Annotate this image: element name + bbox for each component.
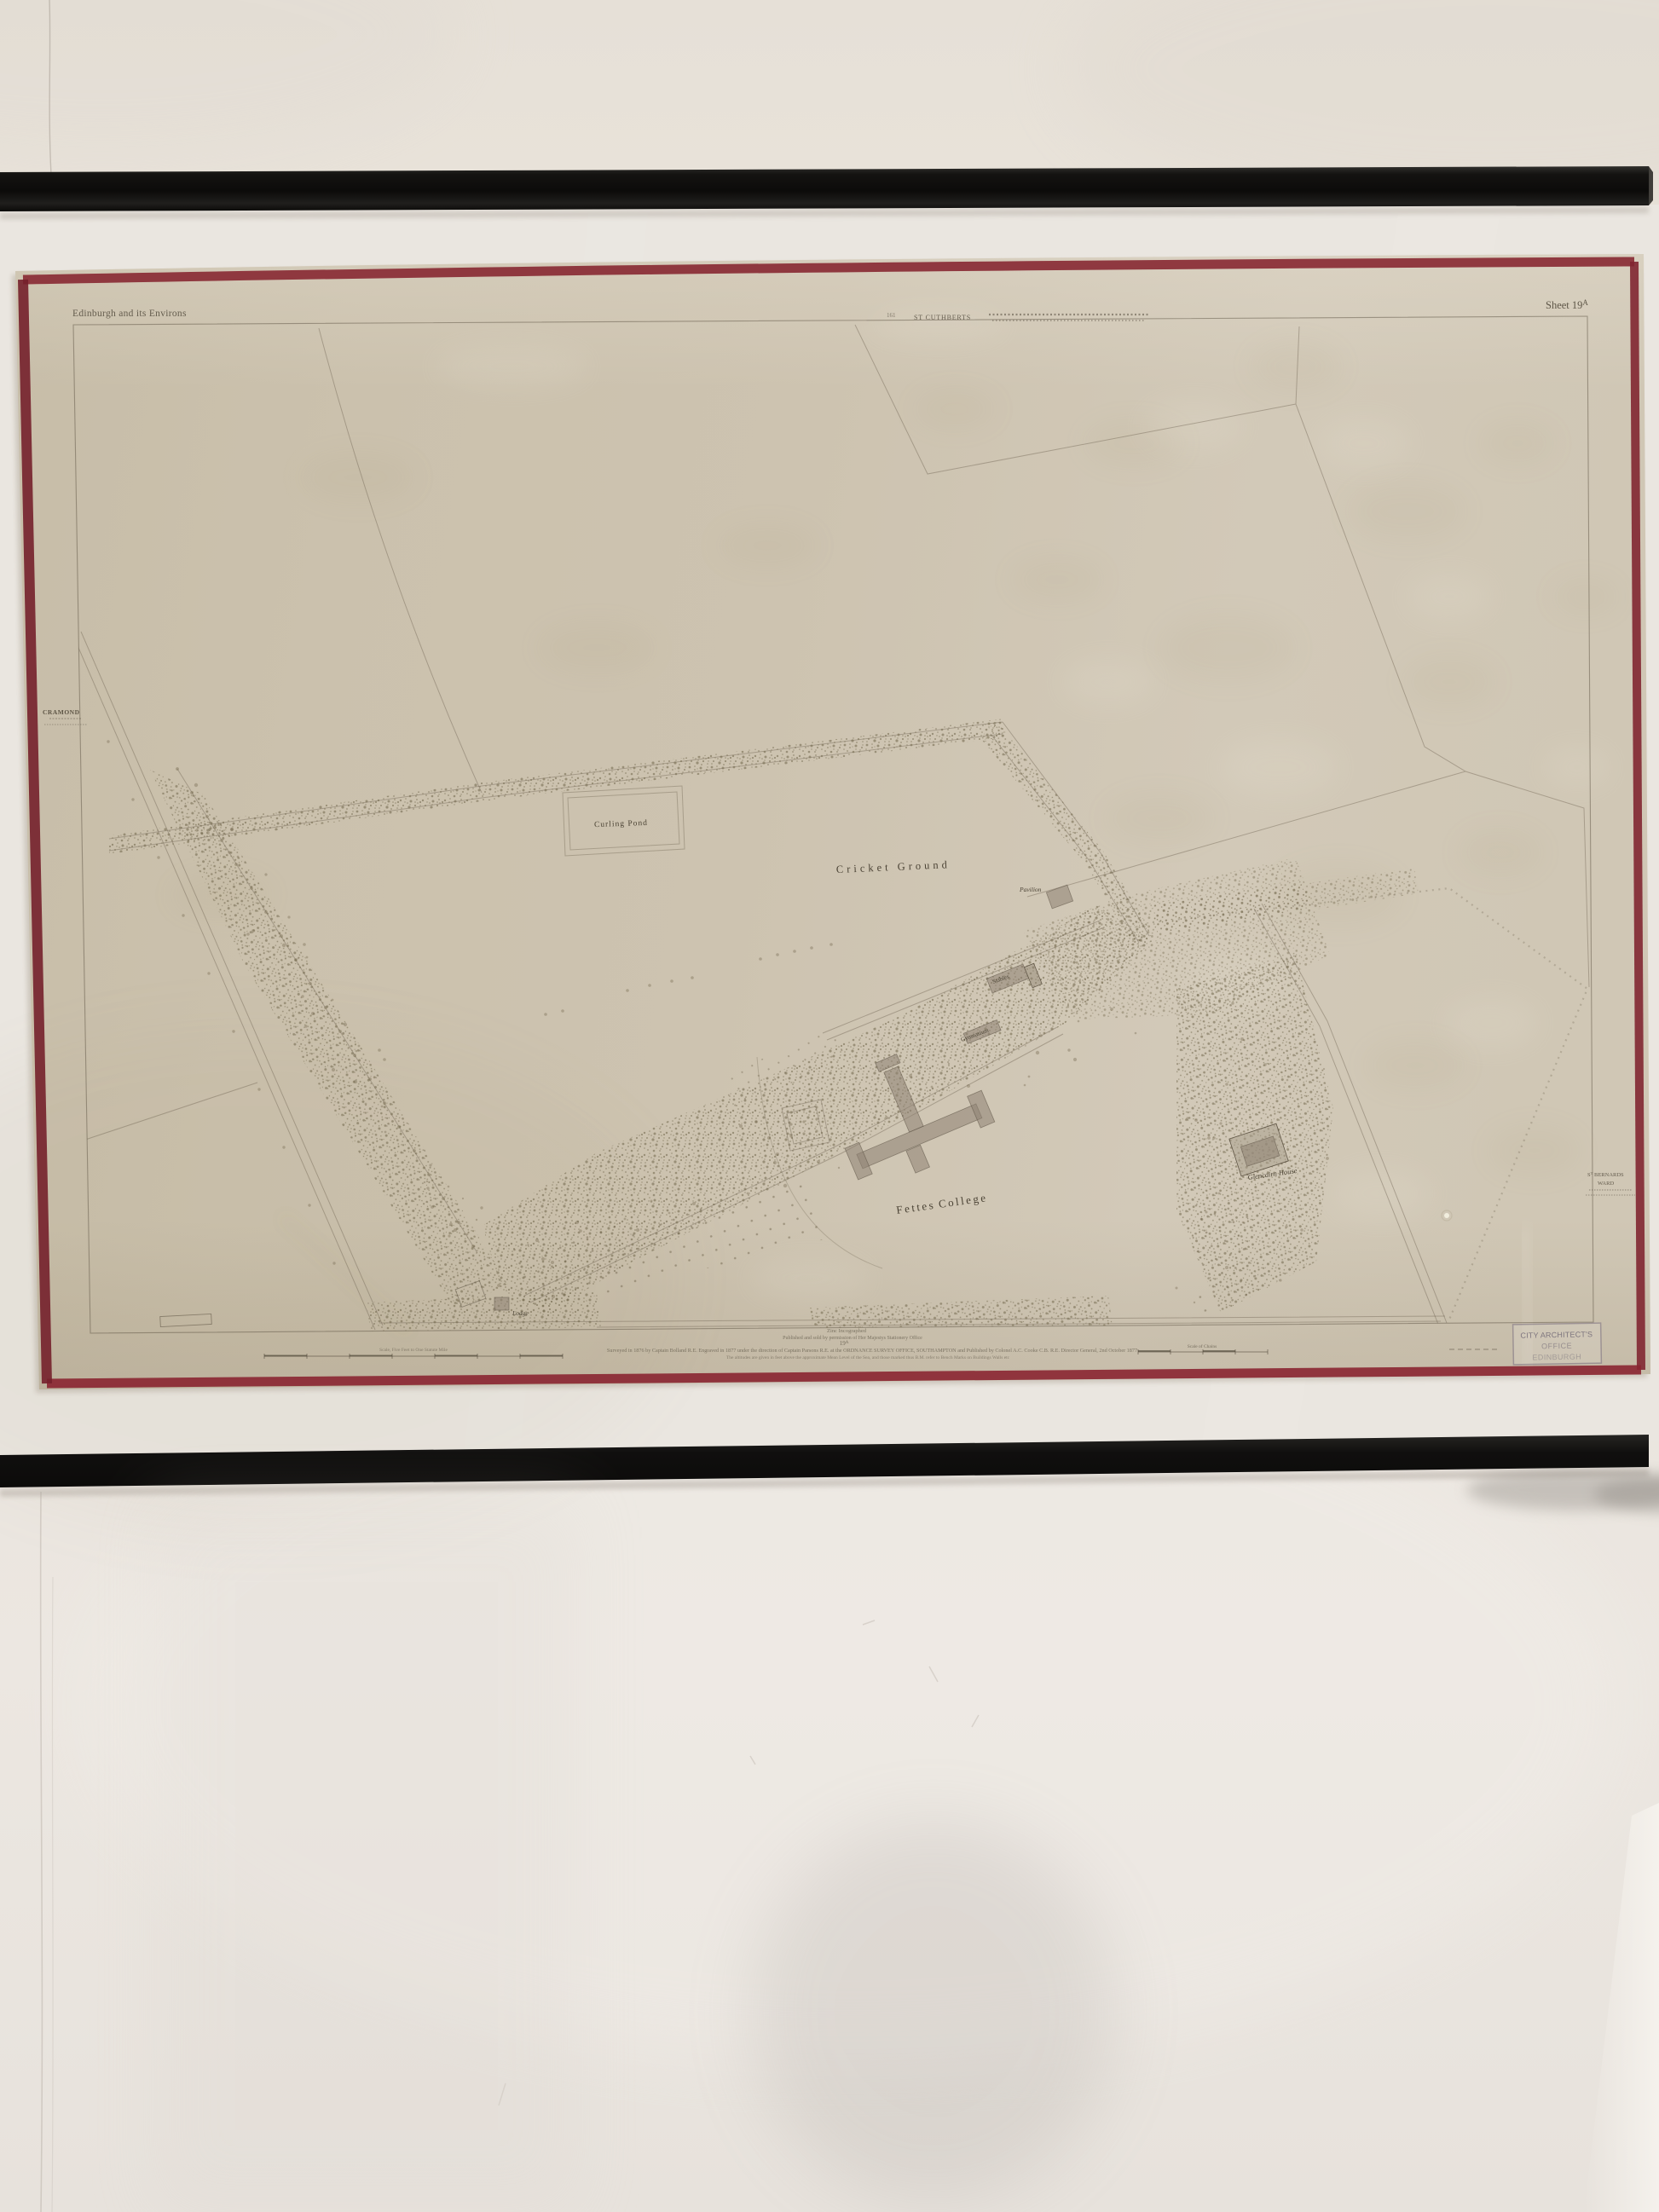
svg-text:Zinc Incographed: Zinc Incographed — [827, 1328, 867, 1334]
svg-text:Surveyed in 1876 by Captain Bo: Surveyed in 1876 by Captain Bolland R.E.… — [607, 1348, 1137, 1354]
svg-text:Lodge: Lodge — [512, 1309, 529, 1317]
svg-text:CITY ARCHITECT'S: CITY ARCHITECT'S — [1520, 1330, 1593, 1339]
svg-text:The altitudes are given in fee: The altitudes are given in feet above th… — [726, 1354, 1010, 1360]
svg-text:WARD: WARD — [1598, 1181, 1614, 1187]
svg-text:Scale of Chains: Scale of Chains — [1188, 1343, 1217, 1349]
svg-text:Pavilion: Pavilion — [1019, 886, 1042, 893]
svg-text:OFFICE: OFFICE — [1541, 1342, 1572, 1351]
svg-text:161: 161 — [887, 312, 896, 319]
svg-text:Published and sold by permissi: Published and sold by permission of Her … — [783, 1335, 922, 1341]
svg-text:CRAMOND: CRAMOND — [43, 708, 80, 716]
svg-text:Edinburgh and its Environs: Edinburgh and its Environs — [72, 309, 187, 319]
svg-text:ST BERNARDS: ST BERNARDS — [1587, 1171, 1624, 1178]
svg-text:Scale, Five Feet to One Statut: Scale, Five Feet to One Statute Mile — [379, 1348, 448, 1353]
svg-text:EDINBURGH: EDINBURGH — [1532, 1352, 1581, 1361]
svg-text:Sheet 19A: Sheet 19A — [1546, 298, 1588, 311]
svg-text:ST CUTHBERTS: ST CUTHBERTS — [914, 314, 971, 321]
